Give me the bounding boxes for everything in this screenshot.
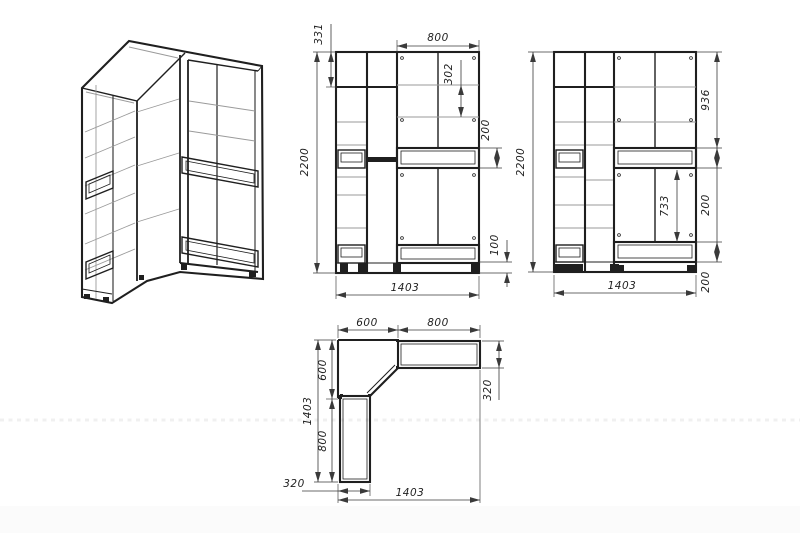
wardrobe-blueprint: 2200 331 800 302 200 100 — [0, 0, 800, 533]
plan-dim-right-unit-width: 800 — [427, 317, 449, 329]
footer-band — [0, 506, 800, 533]
front-dim-right-section-width: 800 — [427, 32, 449, 44]
side-elevation-view: 2200 936 200 733 200 1403 — [515, 52, 722, 297]
front-cabinet-outline — [336, 52, 479, 273]
side-dim-door-section: 733 — [659, 195, 671, 217]
plan-dim-left-unit-length: 800 — [317, 430, 329, 452]
side-dim-total-width: 1403 — [608, 280, 637, 292]
front-elevation-view: 2200 331 800 302 200 100 — [299, 23, 512, 299]
side-dim-upper-section: 936 — [700, 89, 712, 111]
side-dim-drawer-bottom: 200 — [700, 271, 712, 293]
plan-view: 600 800 600 800 1403 320 1403 — [283, 317, 504, 503]
plan-dimensions: 600 800 600 800 1403 320 1403 — [283, 317, 504, 503]
front-dim-total-height: 2200 — [299, 148, 311, 177]
front-dim-shelf-spacing: 302 — [443, 63, 455, 85]
plan-outline — [338, 339, 480, 482]
isometric-view — [82, 41, 263, 303]
side-dimensions: 2200 936 200 733 200 1403 — [515, 52, 722, 297]
plan-dim-right-unit-depth: 320 — [482, 379, 494, 401]
front-dim-total-width: 1403 — [391, 282, 420, 294]
plan-dim-left-unit-width: 320 — [283, 478, 305, 490]
plan-dim-corner-side-depth: 600 — [317, 359, 329, 381]
side-cabinet-outline — [554, 52, 696, 272]
side-dim-drawer-top: 200 — [700, 194, 712, 216]
front-dim-drawer-height: 200 — [480, 119, 492, 141]
front-dim-plinth-height: 100 — [489, 234, 501, 256]
front-dim-top-section: 331 — [313, 23, 325, 45]
plan-dim-corner-top-width: 600 — [356, 317, 378, 329]
side-dim-total-height: 2200 — [515, 148, 527, 177]
drawing-canvas: 2200 331 800 302 200 100 — [0, 0, 800, 533]
plan-dim-total-depth: 1403 — [302, 397, 314, 426]
plan-dim-total-width: 1403 — [396, 487, 425, 499]
